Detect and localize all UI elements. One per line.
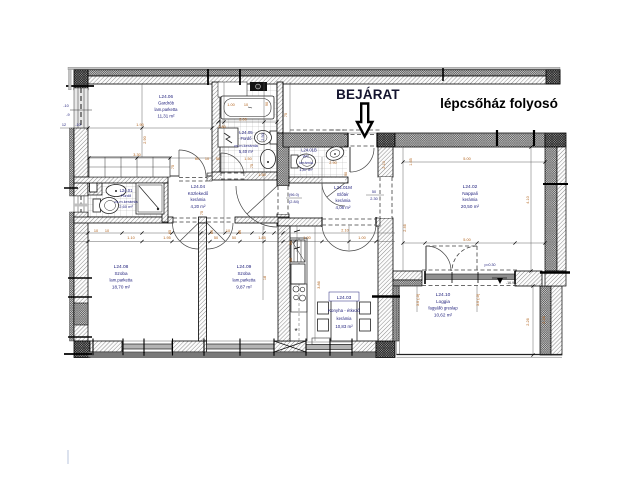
svg-text:50: 50 bbox=[216, 157, 220, 161]
svg-text:Loggia: Loggia bbox=[436, 299, 450, 304]
svg-text:90: 90 bbox=[344, 172, 348, 176]
svg-text:1.00: 1.00 bbox=[227, 103, 234, 107]
svg-text:5.00: 5.00 bbox=[463, 238, 470, 242]
svg-text:(2.84): (2.84) bbox=[289, 200, 300, 204]
svg-text:2.50: 2.50 bbox=[261, 133, 265, 140]
svg-text:BEJÁRAT: BEJÁRAT bbox=[336, 87, 400, 102]
svg-text:1.50: 1.50 bbox=[258, 173, 265, 177]
svg-text:75: 75 bbox=[171, 165, 175, 169]
svg-text:WC: WC bbox=[303, 154, 310, 159]
svg-text:85: 85 bbox=[168, 230, 172, 234]
svg-text:kerámia: kerámia bbox=[463, 197, 479, 202]
svg-text:Fürdő: Fürdő bbox=[241, 136, 253, 141]
svg-text:L24.08: L24.08 bbox=[114, 264, 129, 270]
svg-text:L24.01M: L24.01M bbox=[334, 185, 352, 190]
svg-text:10: 10 bbox=[244, 103, 248, 107]
svg-text:5.00: 5.00 bbox=[463, 157, 470, 161]
svg-text:Gardrób: Gardrób bbox=[158, 101, 175, 106]
svg-text:L24.09: L24.09 bbox=[237, 264, 252, 270]
svg-text:2.30: 2.30 bbox=[370, 197, 377, 201]
svg-text:2.10: 2.10 bbox=[341, 229, 348, 233]
svg-text:10,62 m²: 10,62 m² bbox=[434, 313, 453, 318]
svg-text:1.10: 1.10 bbox=[127, 236, 134, 240]
svg-text:Fürdő: Fürdő bbox=[121, 193, 132, 198]
svg-text:90: 90 bbox=[265, 102, 269, 106]
svg-text:1.50: 1.50 bbox=[244, 157, 251, 161]
svg-text:85: 85 bbox=[210, 230, 214, 234]
svg-text:1,87 m²: 1,87 m² bbox=[299, 167, 313, 172]
svg-text:75: 75 bbox=[200, 211, 204, 215]
svg-text:2.90: 2.90 bbox=[329, 161, 336, 165]
svg-text:1.95: 1.95 bbox=[163, 236, 170, 240]
svg-text:1.00: 1.00 bbox=[358, 236, 365, 240]
svg-text:Szoba: Szoba bbox=[114, 271, 127, 276]
svg-text:50: 50 bbox=[372, 190, 376, 194]
svg-text:1.90: 1.90 bbox=[136, 123, 143, 127]
svg-text:2.90: 2.90 bbox=[143, 136, 147, 143]
svg-text:-9: -9 bbox=[66, 113, 69, 117]
svg-text:60: 60 bbox=[195, 157, 199, 161]
svg-text:2.46: 2.46 bbox=[403, 224, 407, 231]
svg-text:4,20 m²: 4,20 m² bbox=[191, 204, 206, 209]
svg-text:L24.03: L24.03 bbox=[337, 295, 352, 301]
svg-text:3.30: 3.30 bbox=[133, 153, 140, 157]
svg-text:10: 10 bbox=[105, 229, 109, 233]
svg-text:Közlekedő: Közlekedő bbox=[188, 191, 209, 196]
svg-text:-10: -10 bbox=[75, 123, 81, 127]
svg-text:(96.0): (96.0) bbox=[289, 193, 300, 197]
svg-text:2.26: 2.26 bbox=[526, 318, 530, 325]
svg-text:4.10: 4.10 bbox=[526, 196, 530, 203]
svg-text:lépcsőház folyosó: lépcsőház folyosó bbox=[440, 96, 558, 111]
svg-text:1.85: 1.85 bbox=[258, 236, 265, 240]
svg-text:2.26: 2.26 bbox=[542, 316, 546, 323]
svg-text:1.90: 1.90 bbox=[303, 236, 310, 240]
svg-text:cs.m.kerámia: cs.m.kerámia bbox=[234, 143, 259, 148]
svg-text:-16.95: -16.95 bbox=[506, 281, 516, 285]
svg-text:L24.10: L24.10 bbox=[436, 292, 451, 298]
svg-text:3.0 (-0): 3.0 (-0) bbox=[476, 293, 480, 306]
svg-text:kerámia: kerámia bbox=[337, 316, 353, 321]
svg-text:lam.parketta: lam.parketta bbox=[232, 278, 256, 283]
svg-text:90: 90 bbox=[289, 258, 293, 262]
svg-text:kerámia: kerámia bbox=[336, 198, 352, 203]
svg-text:p=0.30: p=0.30 bbox=[484, 263, 495, 267]
svg-text:-10: -10 bbox=[63, 104, 69, 108]
svg-text:L24.02: L24.02 bbox=[463, 184, 478, 190]
svg-text:Szoba: Szoba bbox=[237, 271, 250, 276]
svg-text:L24.01B: L24.01B bbox=[301, 148, 317, 153]
svg-text:75: 75 bbox=[250, 164, 254, 168]
svg-text:*: * bbox=[294, 327, 297, 336]
svg-text:kerámia: kerámia bbox=[299, 160, 314, 165]
svg-text:50: 50 bbox=[214, 236, 218, 240]
svg-text:10: 10 bbox=[226, 229, 230, 233]
svg-text:10,83 m²: 10,83 m² bbox=[335, 324, 353, 329]
svg-text:75: 75 bbox=[284, 113, 288, 117]
svg-text:L24.04: L24.04 bbox=[191, 184, 205, 189]
svg-text:12: 12 bbox=[62, 123, 66, 127]
svg-text:4,06 m²: 4,06 m² bbox=[336, 205, 351, 210]
svg-text:10: 10 bbox=[94, 229, 98, 233]
svg-text:18,70 m²: 18,70 m² bbox=[112, 285, 131, 290]
svg-text:fagyálló greslap: fagyálló greslap bbox=[428, 306, 458, 311]
svg-text:kerámia: kerámia bbox=[191, 197, 207, 202]
svg-text:20,50 m²: 20,50 m² bbox=[461, 204, 480, 209]
svg-text:2.10: 2.10 bbox=[382, 161, 386, 168]
svg-text:9,87 m²: 9,87 m² bbox=[236, 285, 252, 290]
svg-text:Előtér: Előtér bbox=[337, 192, 349, 197]
svg-text:11,31 m²: 11,31 m² bbox=[157, 114, 175, 119]
svg-text:50: 50 bbox=[232, 236, 236, 240]
svg-text:5,40 m²: 5,40 m² bbox=[239, 149, 254, 154]
svg-text:Konyha - étkező: Konyha - étkező bbox=[328, 308, 360, 313]
svg-text:50: 50 bbox=[289, 241, 293, 245]
svg-text:3.86: 3.86 bbox=[317, 281, 321, 288]
svg-text:2,60 m²: 2,60 m² bbox=[119, 204, 133, 209]
svg-text:Nappali: Nappali bbox=[462, 191, 478, 196]
svg-text:L24.06: L24.06 bbox=[159, 94, 173, 99]
svg-text:18: 18 bbox=[263, 276, 267, 280]
svg-text:1.65: 1.65 bbox=[409, 158, 413, 165]
svg-text:lam.parketta: lam.parketta bbox=[109, 278, 133, 283]
svg-text:3.0 (-0): 3.0 (-0) bbox=[416, 293, 420, 306]
svg-text:10: 10 bbox=[205, 157, 209, 161]
svg-text:2.00: 2.00 bbox=[239, 118, 246, 122]
svg-text:lam.parketta: lam.parketta bbox=[154, 107, 178, 112]
svg-text:L24.05: L24.05 bbox=[239, 130, 253, 135]
svg-text:85: 85 bbox=[238, 230, 242, 234]
svg-text:2.80: 2.80 bbox=[218, 125, 225, 129]
